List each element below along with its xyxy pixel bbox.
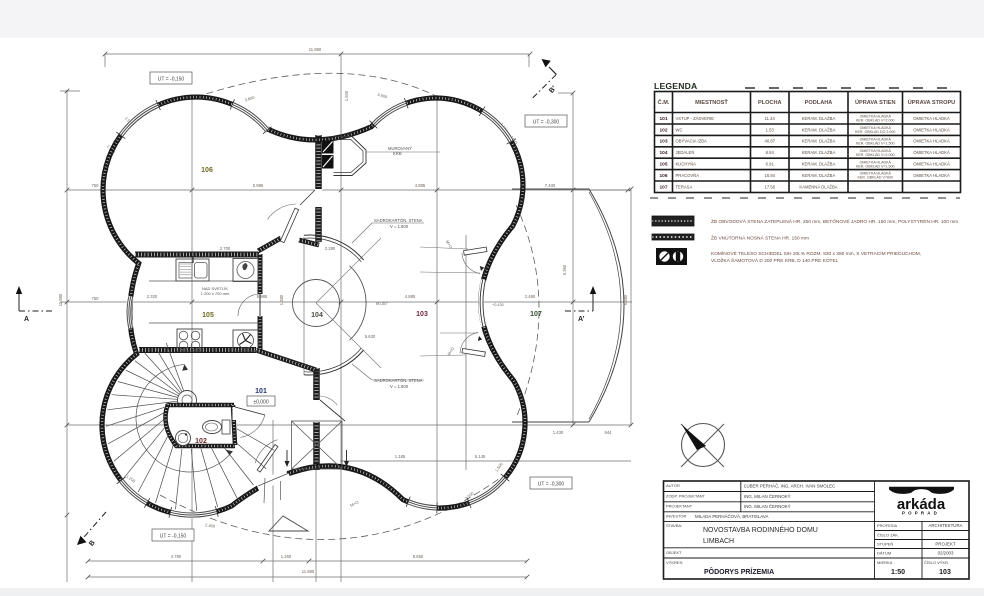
svg-text:90,00°: 90,00°	[376, 301, 388, 306]
svg-text:LEGENDA: LEGENDA	[654, 81, 697, 91]
svg-text:1.430: 1.430	[553, 430, 564, 435]
svg-text:107: 107	[659, 184, 667, 190]
svg-text:KAMENNÁ DLAŽBA: KAMENNÁ DLAŽBA	[799, 184, 837, 189]
svg-text:4.780: 4.780	[171, 554, 182, 559]
svg-text:MIERKA: MIERKA	[877, 560, 893, 565]
svg-text:5.630: 5.630	[365, 334, 376, 339]
svg-text:KERAM. DLAŽBA: KERAM. DLAŽBA	[802, 173, 836, 178]
svg-text:7.430: 7.430	[545, 183, 556, 188]
svg-text:2.700: 2.700	[220, 246, 231, 251]
svg-text:KER. OBKLAD V=2.000: KER. OBKLAD V=2.000	[856, 119, 894, 123]
svg-text:NOVOSTAVBA RODINNÉHO DOMU: NOVOSTAVBA RODINNÉHO DOMU	[703, 525, 818, 534]
svg-text:INVESTOR: INVESTOR	[666, 514, 686, 519]
svg-text:KER. OBKLÁD V=600: KER. OBKLÁD V=600	[858, 176, 893, 180]
svg-text:ZODP. PROJEKTANT: ZODP. PROJEKTANT	[666, 494, 706, 499]
svg-text:5.650: 5.650	[413, 554, 424, 559]
svg-text:KER. OBKLÁD V=1.500: KER. OBKLÁD V=1.500	[856, 142, 894, 146]
svg-text:KERAM. DLAŽBA: KERAM. DLAŽBA	[802, 127, 836, 132]
svg-text:1.185: 1.185	[395, 454, 406, 459]
svg-text:PROJEKT: PROJEKT	[935, 542, 956, 547]
svg-text:OMIETKA HLADKÁ: OMIETKA HLADKÁ	[913, 116, 950, 121]
svg-text:4.885: 4.885	[415, 183, 426, 188]
svg-text:KER. OBKLAD V=1.500: KER. OBKLAD V=1.500	[856, 164, 894, 168]
svg-text:UT = -0,150: UT = -0,150	[160, 534, 187, 540]
svg-text:DÁTUM: DÁTUM	[877, 551, 891, 556]
svg-text:PODLAHA: PODLAHA	[805, 100, 833, 106]
svg-text:11.980: 11.980	[58, 293, 63, 306]
svg-text:1.200 x 700 mm: 1.200 x 700 mm	[201, 291, 230, 296]
svg-text:17.58: 17.58	[765, 184, 776, 189]
svg-text:PRACOVŇA: PRACOVŇA	[676, 173, 700, 178]
svg-text:102: 102	[659, 127, 667, 133]
svg-text:ING. MILAN ČERNOKÝ: ING. MILAN ČERNOKÝ	[744, 504, 791, 509]
svg-text:1.500: 1.500	[344, 90, 349, 101]
svg-text:106: 106	[201, 167, 213, 174]
svg-text:KER. OBKLÁD V=2.000: KER. OBKLÁD V=2.000	[856, 153, 894, 157]
svg-text:104: 104	[311, 312, 323, 319]
svg-text:ÚPRAVA STIEN: ÚPRAVA STIEN	[855, 99, 896, 106]
svg-text:KERAM. DLAŽBA: KERAM. DLAŽBA	[802, 162, 836, 167]
svg-text:KUCHYŇA: KUCHYŇA	[676, 162, 697, 167]
svg-text:STAVBA:: STAVBA:	[666, 523, 682, 528]
svg-text:1.380: 1.380	[279, 294, 284, 305]
svg-text:1:50: 1:50	[891, 569, 905, 576]
svg-text:MIESTNOSŤ: MIESTNOSŤ	[695, 98, 728, 106]
svg-text:PROFESIA: PROFESIA	[877, 523, 898, 528]
svg-text:5.145: 5.145	[475, 454, 486, 459]
svg-text:+0,430: +0,430	[492, 303, 504, 307]
svg-text:KERAM. DLAŽBA: KERAM. DLAŽBA	[802, 139, 836, 144]
svg-text:ČÍSLO VÝKR.: ČÍSLO VÝKR.	[924, 560, 949, 565]
svg-text:ARCHITEKTÚRA: ARCHITEKTÚRA	[928, 523, 962, 528]
svg-text:OBÝVACIA IZBA: OBÝVACIA IZBA	[676, 139, 708, 144]
svg-text:VSTUP - ZÁDVERIE: VSTUP - ZÁDVERIE	[676, 116, 715, 121]
svg-text:LIMBACH: LIMBACH	[703, 538, 734, 545]
svg-text:A’: A’	[578, 316, 585, 323]
svg-text:JEDÁLEŇ: JEDÁLEŇ	[676, 150, 695, 155]
svg-text:V = 1.800: V = 1.800	[390, 384, 409, 389]
svg-text:PROJEKTANT: PROJEKTANT	[666, 504, 693, 509]
svg-text:UT = -0,300: UT = -0,300	[533, 120, 560, 126]
svg-text:2.320: 2.320	[147, 294, 158, 299]
svg-text:ĽUBER PERHÁČ, ING. ARCH. IVAN: ĽUBER PERHÁČ, ING. ARCH. IVAN SMOLEC	[744, 484, 835, 489]
svg-text:103: 103	[939, 569, 951, 576]
svg-text:POPRAD: POPRAD	[902, 511, 940, 516]
svg-text:OMIETKA HLADKÁ: OMIETKA HLADKÁ	[913, 162, 950, 167]
svg-text:5.360: 5.360	[562, 264, 567, 275]
svg-text:UT = -0,150: UT = -0,150	[158, 77, 185, 83]
svg-text:4.885: 4.885	[405, 294, 416, 299]
svg-text:OMIETKA HLADKÁ: OMIETKA HLADKÁ	[913, 150, 950, 155]
svg-text:106: 106	[659, 173, 667, 179]
svg-text:PÔDORYS PRÍZEMIA: PÔDORYS PRÍZEMIA	[704, 567, 774, 576]
svg-text:A: A	[24, 316, 29, 323]
svg-text:2.480: 2.480	[525, 294, 536, 299]
svg-text:KERAM. DLAŽBA: KERAM. DLAŽBA	[802, 150, 836, 155]
svg-text:8.84: 8.84	[766, 150, 775, 155]
svg-text:104: 104	[659, 150, 667, 156]
svg-text:11.980: 11.980	[309, 47, 322, 52]
svg-text:1.250: 1.250	[281, 554, 292, 559]
svg-text:11.980: 11.980	[302, 569, 315, 574]
svg-text:105: 105	[659, 162, 667, 168]
svg-text:750: 750	[92, 183, 100, 188]
svg-text:16.84: 16.84	[765, 173, 776, 178]
svg-text:11.34: 11.34	[765, 116, 776, 121]
svg-text:OMIETKA HLADKÁ: OMIETKA HLADKÁ	[913, 139, 950, 144]
svg-text:MILADA PERHÁČOVÁ, BRATISLAVA: MILADA PERHÁČOVÁ, BRATISLAVA	[695, 514, 769, 519]
svg-text:101: 101	[255, 388, 267, 395]
svg-text:105: 105	[202, 312, 214, 319]
svg-text:KER. OBKLAD DO 2.000: KER. OBKLAD DO 2.000	[855, 130, 895, 134]
svg-text:OMIETKA HLADKÁ: OMIETKA HLADKÁ	[913, 173, 950, 178]
svg-text:OBJEKT: OBJEKT	[666, 550, 682, 555]
svg-text:VÝKRES:: VÝKRES:	[666, 560, 683, 565]
svg-text:5.985: 5.985	[253, 183, 264, 188]
svg-text:ING. MILAN ČERNOKÝ: ING. MILAN ČERNOKÝ	[744, 494, 791, 499]
svg-text:KOMÍNOVÉ TELESO SCHIEDEL SIH 2: KOMÍNOVÉ TELESO SCHIEDEL SIH 20L% ROZM. …	[711, 250, 921, 257]
svg-text:SADROKARTÓN. STENA: SADROKARTÓN. STENA	[374, 378, 423, 383]
svg-text:WC: WC	[676, 127, 683, 132]
svg-text:101: 101	[659, 116, 667, 122]
svg-text:02/2003: 02/2003	[938, 551, 954, 556]
svg-text:TERASA: TERASA	[676, 184, 693, 189]
svg-text:40.87: 40.87	[765, 139, 776, 144]
svg-text:ČÍSLO ZÁK.: ČÍSLO ZÁK.	[877, 533, 899, 538]
svg-text:103: 103	[416, 311, 428, 318]
svg-text:ÚPRAVA STROPU: ÚPRAVA STROPU	[908, 99, 955, 106]
svg-text:V = 1.800: V = 1.800	[390, 224, 409, 229]
svg-text:944: 944	[605, 430, 613, 435]
svg-text:PLOCHA: PLOCHA	[758, 100, 782, 106]
svg-text:KERAM. DLAŽBA: KERAM. DLAŽBA	[802, 116, 836, 121]
svg-text:±0,000: ±0,000	[253, 400, 268, 406]
svg-text:1.53: 1.53	[766, 127, 775, 132]
svg-text:OMIETKA HLADKÁ: OMIETKA HLADKÁ	[913, 127, 950, 132]
svg-text:AUTOR: AUTOR	[666, 483, 680, 488]
svg-text:SADROKARTÓN. STENA: SADROKARTÓN. STENA	[374, 218, 423, 223]
svg-text:Č.M.: Č.M.	[658, 99, 670, 106]
svg-text:750: 750	[92, 296, 100, 301]
svg-text:2.280: 2.280	[325, 246, 336, 251]
svg-text:103: 103	[659, 139, 667, 145]
svg-text:102: 102	[195, 438, 207, 445]
svg-text:107: 107	[530, 311, 542, 318]
svg-text:UT = -0,300: UT = -0,300	[538, 482, 565, 488]
svg-text:6.91: 6.91	[766, 162, 775, 167]
svg-text:STUPEŇ: STUPEŇ	[877, 542, 893, 547]
svg-text:5.985: 5.985	[257, 294, 268, 299]
